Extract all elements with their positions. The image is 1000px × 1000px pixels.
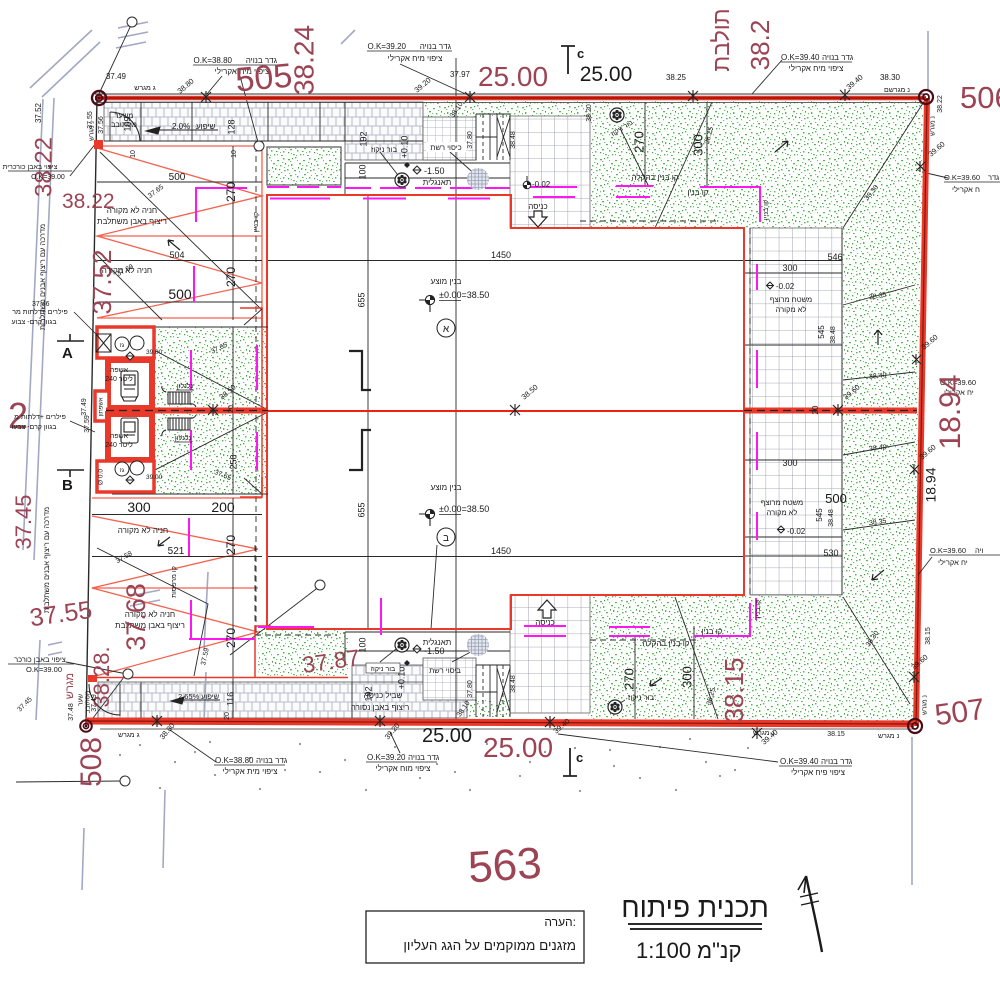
svg-text:אשפה: אשפה bbox=[110, 433, 129, 440]
svg-text:קו בנין: קו בנין bbox=[687, 188, 708, 197]
svg-text:תכנית פיתוח: תכנית פיתוח bbox=[621, 892, 769, 923]
svg-text:פילרים +דלתות מר: פילרים +דלתות מר bbox=[12, 308, 67, 316]
svg-text:גדר בנויה: גדר בנויה bbox=[821, 757, 853, 766]
svg-text:ציפוי מוח אקרילי: ציפוי מוח אקרילי bbox=[376, 764, 431, 773]
svg-text:כניסה: כניסה bbox=[535, 618, 554, 627]
svg-text:37.58: 37.58 bbox=[115, 550, 134, 565]
svg-text:530: 530 bbox=[823, 548, 838, 558]
svg-text:נלנלון: נלנלון bbox=[177, 382, 193, 390]
svg-text:שיפוע: שיפוע bbox=[196, 122, 216, 131]
svg-text:גדר בנויה: גדר בנויה bbox=[256, 756, 288, 765]
svg-text:20: 20 bbox=[228, 405, 235, 413]
svg-text:קו בניין: קו בניין bbox=[253, 212, 260, 232]
svg-text:1450: 1450 bbox=[491, 546, 511, 556]
svg-text:שער: שער bbox=[78, 694, 85, 706]
svg-text:39.00: 39.00 bbox=[146, 474, 163, 481]
svg-text:39.20: 39.20 bbox=[413, 76, 433, 95]
svg-text:508: 508 bbox=[75, 737, 108, 787]
svg-text:300: 300 bbox=[782, 263, 797, 273]
svg-text:גדר בנויה: גדר בנויה bbox=[822, 53, 854, 62]
svg-text:18.94: 18.94 bbox=[934, 374, 967, 449]
svg-text:-1.50: -1.50 bbox=[424, 166, 445, 176]
svg-text:10: 10 bbox=[130, 150, 137, 158]
svg-text:שיפוע: שיפוע bbox=[201, 692, 220, 701]
svg-text:ביסוי רשת: ביסוי רשת bbox=[429, 666, 461, 675]
svg-text:500: 500 bbox=[169, 172, 186, 183]
svg-text:חניה לא מקורה: חניה לא מקורה bbox=[118, 526, 168, 535]
svg-text:38.24: 38.24 bbox=[288, 25, 319, 95]
svg-text:בור ניקוז: בור ניקוז bbox=[371, 145, 398, 154]
svg-text:100: 100 bbox=[357, 164, 367, 179]
svg-text:קו בניין: קו בניין bbox=[763, 200, 770, 220]
svg-text:+0.10: +0.10 bbox=[399, 136, 409, 159]
svg-text:גדר בנויה: גדר בנויה bbox=[408, 753, 440, 762]
svg-text:Ø 0.0: Ø 0.0 bbox=[98, 469, 105, 485]
svg-text:506: 506 bbox=[960, 80, 1000, 115]
svg-text:37.97: 37.97 bbox=[450, 70, 471, 79]
svg-text:O.K=39.60: O.K=39.60 bbox=[930, 546, 966, 555]
svg-text:521: 521 bbox=[168, 546, 185, 557]
svg-text:קו בנין: קו בנין bbox=[755, 600, 762, 618]
svg-text:O.K=39.40: O.K=39.40 bbox=[781, 53, 820, 62]
svg-text:38.50: 38.50 bbox=[520, 383, 540, 402]
svg-text:קו בנין בהקלה: קו בנין בהקלה bbox=[631, 173, 678, 182]
svg-text:38.25: 38.25 bbox=[666, 73, 687, 82]
svg-text:שביל כניסה: שביל כניסה bbox=[364, 691, 403, 700]
svg-text:O.K=38.80: O.K=38.80 bbox=[215, 756, 254, 765]
svg-text:נ מגרש: נ מגרש bbox=[753, 730, 775, 737]
svg-text:1:100: 1:100 bbox=[636, 938, 691, 963]
svg-text:תאנגלית: תאנגלית bbox=[423, 178, 452, 187]
svg-text:25.00: 25.00 bbox=[483, 732, 553, 763]
svg-text:38.48: 38.48 bbox=[830, 326, 837, 344]
svg-text:2.65%: 2.65% bbox=[178, 692, 200, 701]
svg-text:37.49: 37.49 bbox=[106, 72, 127, 81]
svg-text:בנין מוצע: בנין מוצע bbox=[431, 277, 462, 286]
svg-text:37.52: 37.52 bbox=[87, 249, 117, 314]
svg-text:O.K=38.80: O.K=38.80 bbox=[194, 56, 233, 65]
svg-text:109: 109 bbox=[122, 116, 132, 131]
svg-text:גדר בנויה: גדר בנויה bbox=[420, 42, 452, 51]
svg-text:מגרש: מגרש bbox=[64, 673, 76, 699]
svg-text:116: 116 bbox=[225, 692, 235, 706]
svg-text:±0.00=38.50: ±0.00=38.50 bbox=[439, 290, 489, 300]
svg-text:270: 270 bbox=[224, 267, 238, 287]
svg-text:חניה לא מקורה: חניה לא מקורה bbox=[107, 206, 157, 215]
svg-text:גז: גז bbox=[120, 468, 125, 474]
svg-text:655: 655 bbox=[356, 292, 366, 307]
svg-text:507: 507 bbox=[933, 693, 987, 733]
svg-text:לא מקורה: לא מקורה bbox=[767, 508, 798, 517]
svg-text:39.00: 39.00 bbox=[146, 349, 163, 356]
svg-text:O.K=39.00: O.K=39.00 bbox=[26, 665, 62, 674]
svg-text:37.46: 37.46 bbox=[32, 301, 50, 308]
svg-text:קו מרפסות: קו מרפסות bbox=[171, 566, 178, 598]
svg-text:מזגנים ממוקמים על הגג העליון: מזגנים ממוקמים על הגג העליון bbox=[403, 938, 576, 953]
svg-text:20: 20 bbox=[811, 405, 820, 414]
svg-text:240 ליטר: 240 ליטר bbox=[105, 441, 133, 449]
svg-text:39.60: 39.60 bbox=[927, 140, 947, 159]
svg-text:-0.02: -0.02 bbox=[787, 527, 806, 536]
svg-text:אשפתון: אשפתון bbox=[99, 397, 105, 416]
svg-text:נלנלון: נלנלון bbox=[175, 434, 191, 442]
svg-text:25.00: 25.00 bbox=[478, 61, 548, 92]
svg-text:504: 504 bbox=[169, 250, 184, 260]
svg-text:563: 563 bbox=[466, 839, 543, 893]
svg-text:37.59: 37.59 bbox=[200, 647, 211, 666]
svg-text:250: 250 bbox=[228, 454, 238, 469]
svg-text:c: c bbox=[576, 750, 583, 765]
svg-text:38.30: 38.30 bbox=[880, 73, 901, 82]
svg-text:240 ליטר: 240 ליטר bbox=[105, 375, 133, 383]
svg-text:546: 546 bbox=[827, 252, 842, 262]
svg-text:38.80: 38.80 bbox=[176, 77, 196, 96]
svg-text:אשפה: אשפה bbox=[110, 367, 129, 374]
svg-text:נ מגרש: נ מגרש bbox=[89, 121, 96, 141]
svg-text:O.K=39.60: O.K=39.60 bbox=[944, 173, 980, 182]
svg-text:300: 300 bbox=[690, 134, 705, 156]
svg-text:כיסוי רשת: כיסוי רשת bbox=[430, 143, 461, 152]
svg-text:O.K=39.20: O.K=39.20 bbox=[367, 753, 406, 762]
svg-text:ג מגרש: ג מגרש bbox=[134, 85, 156, 92]
svg-text:38.2: 38.2 bbox=[745, 20, 775, 71]
svg-text:505: 505 bbox=[234, 57, 294, 100]
svg-text:38.15: 38.15 bbox=[827, 731, 845, 738]
svg-text:-0.02: -0.02 bbox=[776, 282, 795, 291]
svg-text:ציפוי באבן כורכר: ציפוי באבן כורכר bbox=[14, 655, 66, 664]
svg-text:37.45: 37.45 bbox=[16, 696, 33, 713]
svg-text:300: 300 bbox=[679, 666, 694, 688]
svg-text:גז: גז bbox=[120, 343, 125, 349]
svg-text:200: 200 bbox=[211, 499, 235, 515]
svg-text:c: c bbox=[577, 46, 584, 61]
svg-text:38.15: 38.15 bbox=[925, 627, 932, 645]
svg-text:37.49: 37.49 bbox=[91, 694, 98, 712]
svg-text:בור ניקוז: בור ניקוז bbox=[371, 666, 395, 673]
svg-text:ריצוף באבן משתלבת: ריצוף באבן משתלבת bbox=[97, 217, 167, 226]
svg-text:300: 300 bbox=[127, 499, 151, 515]
svg-text:10: 10 bbox=[231, 150, 238, 158]
svg-text:±0.00=38.50: ±0.00=38.50 bbox=[439, 504, 489, 514]
svg-text:A: A bbox=[62, 345, 73, 362]
svg-text:270: 270 bbox=[224, 628, 238, 648]
svg-text:38.15: 38.15 bbox=[719, 657, 749, 722]
svg-text:קנ"מ: קנ"מ bbox=[697, 938, 741, 963]
svg-text:270: 270 bbox=[224, 182, 238, 202]
svg-text:500: 500 bbox=[825, 491, 847, 506]
svg-text:ציפוי מיח אקרילי: ציפוי מיח אקרילי bbox=[789, 64, 844, 73]
svg-text:נ מגרש: נ מגרש bbox=[922, 695, 929, 715]
svg-text:545: 545 bbox=[815, 508, 824, 522]
svg-text:37.68: 37.68 bbox=[121, 583, 151, 651]
svg-text:25.00: 25.00 bbox=[580, 63, 633, 86]
svg-text:הערה:: הערה: bbox=[544, 915, 576, 929]
svg-text:בגוון קרם- צבוע: בגוון קרם- צבוע bbox=[11, 319, 56, 326]
svg-text:ציפוי מיח אקרילי: ציפוי מיח אקרילי bbox=[388, 54, 443, 63]
svg-text:חניה לא מקורה: חניה לא מקורה bbox=[102, 266, 152, 275]
svg-text:O.K=39.20: O.K=39.20 bbox=[368, 42, 407, 51]
svg-text:נ מגרש: נ מגרש bbox=[930, 116, 937, 136]
svg-text:500: 500 bbox=[168, 286, 192, 302]
svg-text:545: 545 bbox=[817, 325, 826, 339]
svg-text:38.48: 38.48 bbox=[510, 131, 517, 149]
svg-text:128: 128 bbox=[226, 119, 236, 134]
svg-text:37.48: 37.48 bbox=[68, 703, 75, 721]
svg-text:משטח מרוצף: משטח מרוצף bbox=[761, 498, 803, 507]
svg-text:1450: 1450 bbox=[491, 250, 511, 260]
svg-text:25.00: 25.00 bbox=[422, 725, 472, 747]
svg-text:38.48: 38.48 bbox=[510, 675, 517, 693]
svg-text:37.55: 37.55 bbox=[28, 596, 94, 632]
svg-text:לא מקורה: לא מקורה bbox=[776, 305, 807, 314]
svg-text:39.40: 39.40 bbox=[845, 73, 865, 92]
svg-text:ח אקרילי: ח אקרילי bbox=[952, 185, 980, 194]
svg-text:37.80: 37.80 bbox=[467, 131, 474, 149]
svg-text:270: 270 bbox=[224, 535, 238, 555]
svg-text:37.52: 37.52 bbox=[34, 102, 43, 123]
svg-text:-1.50: -1.50 bbox=[424, 646, 445, 656]
svg-text:ויה: ויה bbox=[975, 546, 984, 555]
svg-text:כניסה: כניסה bbox=[528, 202, 547, 211]
svg-text:ציפוי מית אקרילי: ציפוי מית אקרילי bbox=[223, 767, 279, 776]
svg-text:37.49: 37.49 bbox=[81, 398, 88, 416]
svg-text:37.80: 37.80 bbox=[467, 680, 474, 698]
svg-text:נ מגרש: נ מגרש bbox=[878, 733, 900, 740]
svg-text:37.45: 37.45 bbox=[11, 494, 36, 549]
svg-text:B: B bbox=[62, 477, 73, 494]
svg-text:בנין מוצע: בנין מוצע bbox=[431, 483, 462, 492]
svg-text:300: 300 bbox=[782, 458, 797, 468]
svg-text:משטח מרוצף: משטח מרוצף bbox=[770, 295, 812, 304]
svg-text:38.22: 38.22 bbox=[937, 95, 944, 113]
svg-text:O.K=39.40: O.K=39.40 bbox=[780, 757, 819, 766]
svg-text:פילרים +דלתות מ: פילרים +דלתות מ bbox=[14, 413, 66, 421]
svg-text:37.56: 37.56 bbox=[98, 116, 105, 134]
svg-text:בגוון קרם- צבעו: בגוון קרם- צבעו bbox=[12, 424, 57, 431]
svg-text:-0.02: -0.02 bbox=[532, 180, 551, 189]
svg-text:20: 20 bbox=[224, 712, 231, 720]
svg-text:ריצוף באבן נסורה: ריצוף באבן נסורה bbox=[351, 703, 409, 712]
svg-text:יח אקרילי: יח אקרילי bbox=[938, 558, 968, 567]
svg-text:270: 270 bbox=[621, 668, 636, 690]
svg-text:38.48: 38.48 bbox=[828, 509, 835, 527]
svg-text:א: א bbox=[443, 324, 450, 335]
svg-text:2.0%: 2.0% bbox=[172, 122, 190, 131]
svg-text:תולבת: תולבת bbox=[708, 8, 734, 71]
svg-text:192: 192 bbox=[358, 131, 368, 146]
svg-text:נ מגרשם: נ מגרשם bbox=[884, 87, 910, 94]
svg-text:18.94: 18.94 bbox=[923, 467, 939, 502]
svg-text:מדרכה עם ריצוף אבנים משתלבות: מדרכה עם ריצוף אבנים משתלבות bbox=[42, 507, 51, 613]
svg-text:37.65: 37.65 bbox=[147, 184, 165, 200]
svg-text:קו בנין בהקלה: קו בנין בהקלה bbox=[642, 639, 689, 648]
svg-text:גדר: גדר bbox=[988, 173, 999, 182]
svg-text:ג מגרש: ג מגרש bbox=[118, 732, 140, 739]
svg-text:100: 100 bbox=[357, 637, 367, 652]
svg-text:קו בנין: קו בנין bbox=[701, 627, 722, 636]
svg-text:O.K=39.00: O.K=39.00 bbox=[31, 174, 65, 181]
svg-text:655: 655 bbox=[356, 502, 366, 517]
svg-text:ציפוי פיח אקרילי: ציפוי פיח אקרילי bbox=[791, 768, 846, 777]
svg-text:ב: ב bbox=[443, 533, 449, 544]
svg-text:270: 270 bbox=[631, 131, 646, 153]
svg-text:37.59: 37.59 bbox=[84, 415, 91, 433]
svg-text:ציפוי באבן כורכרית: ציפוי באבן כורכרית bbox=[3, 164, 58, 171]
svg-text:בור ניקוז: בור ניקוז bbox=[628, 693, 655, 702]
svg-text:38.20: 38.20 bbox=[586, 104, 593, 122]
